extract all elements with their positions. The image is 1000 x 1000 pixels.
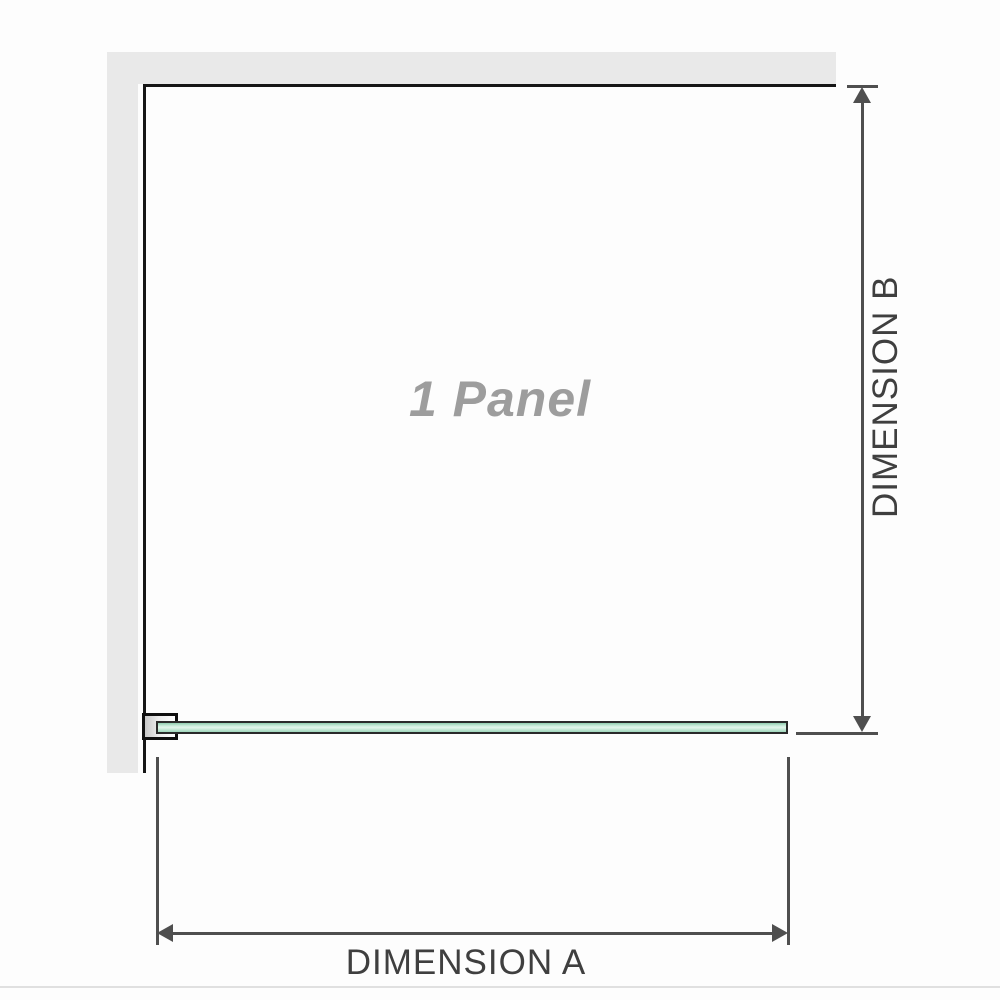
dimension-a-label: DIMENSION A: [266, 941, 666, 985]
wall-top-bar: [107, 52, 836, 84]
arrow-up-icon: [853, 87, 871, 103]
dimension-b-line: [861, 100, 864, 718]
panel-watermark: 1 Panel: [300, 368, 700, 430]
dimension-a-tick-right: [787, 757, 790, 945]
bottom-divider-line: [0, 986, 1000, 988]
arrow-left-icon: [157, 924, 173, 942]
dimension-a-line: [170, 932, 774, 935]
arrow-down-icon: [853, 716, 871, 732]
wall-inner-line-left: [143, 84, 146, 773]
arrow-right-icon: [772, 924, 788, 942]
dimension-b-label: DIMENSION B: [866, 318, 906, 518]
wall-inner-line-top: [143, 84, 836, 87]
wall-left-bar: [107, 52, 138, 773]
glass-panel: [156, 721, 788, 734]
dimension-a-tick-left: [156, 757, 159, 945]
diagram-canvas: 1 Panel DIMENSION B DIMENSION A: [0, 0, 1000, 1000]
